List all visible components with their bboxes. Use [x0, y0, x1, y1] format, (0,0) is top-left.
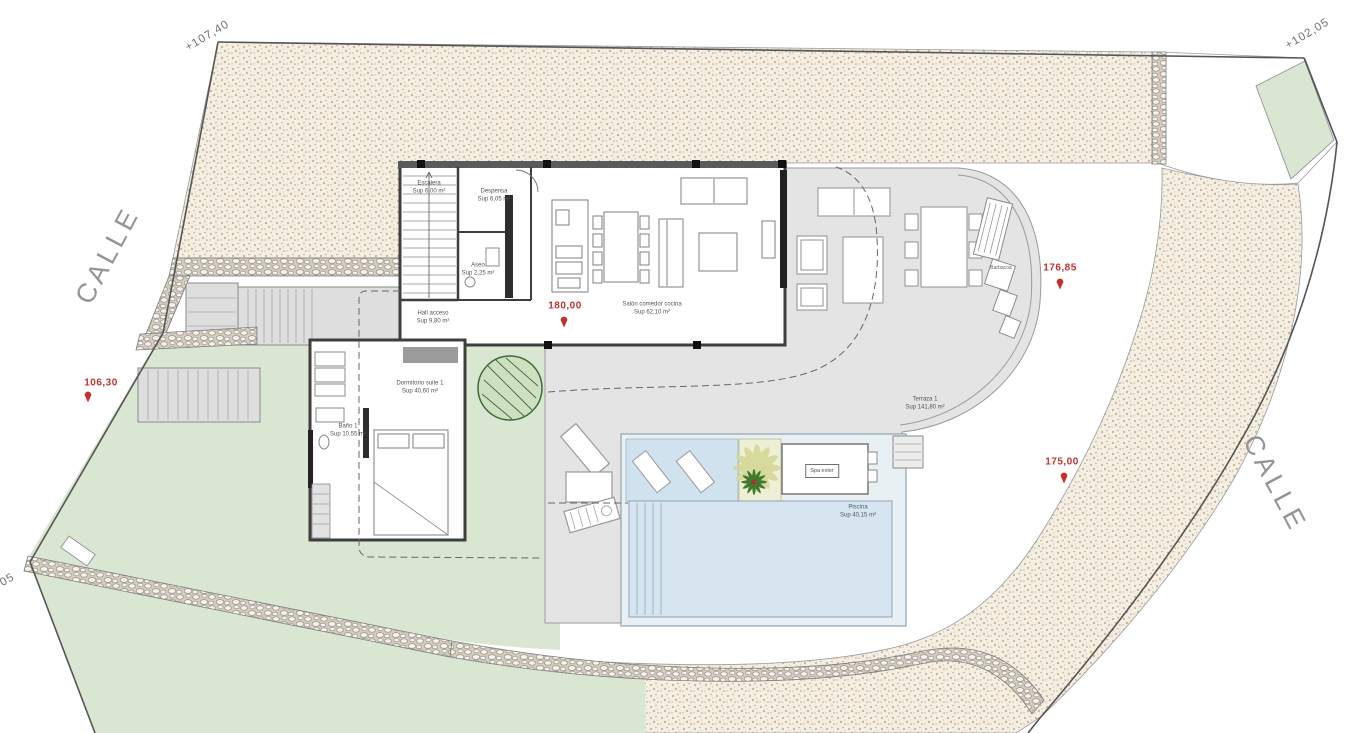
sliding-door-wall: [780, 170, 787, 288]
room-label-dormitorio: Dormitorio suite 1Sup 40,60 m²: [396, 381, 443, 396]
spot-level-pool: 175,00: [1045, 457, 1079, 468]
pool-side-stairs: [893, 436, 923, 468]
room-label-terraza: Terraza 1Sup 141,80 m²: [905, 397, 944, 412]
wing-steps: [312, 484, 330, 538]
spot-level-entry: 106,30: [84, 378, 118, 389]
site-plan: CALLE CALLE +107,40 +102,05 05 106,30 18…: [0, 0, 1366, 733]
bedroom-wing: [308, 340, 465, 540]
room-label-hall: Hall accesoSup 9,80 m²: [417, 311, 450, 326]
room-label-aseo: AseoSup 2,25 m²: [462, 263, 495, 278]
spot-level-terrace: 176,85: [1043, 263, 1077, 274]
room-label-bano: Baño 1Sup 10,55 m²: [330, 424, 366, 439]
bbq-label: Barbacoa: [990, 265, 1011, 271]
bed: [374, 430, 448, 535]
pool: [621, 434, 923, 626]
closet: [315, 352, 345, 396]
room-label-piscina: PiscinaSup 40,15 m²: [840, 505, 876, 520]
spot-level-floor: 180,00: [548, 301, 582, 312]
house-main: [398, 160, 787, 349]
room-label-despensa: DespensaSup 6,05 m²: [478, 189, 511, 204]
tree: [478, 356, 542, 420]
wardrobe: [403, 347, 458, 363]
dining-set: [593, 212, 649, 283]
spa-label: Spa exter: [805, 464, 839, 478]
room-label-escalera: EscaleraSup 6,00 m²: [413, 181, 446, 196]
room-label-salon: Salón comedor cocinaSup 62,10 m²: [622, 302, 681, 317]
kitchen-island: [552, 200, 588, 292]
plan-drawing: [0, 0, 1366, 733]
